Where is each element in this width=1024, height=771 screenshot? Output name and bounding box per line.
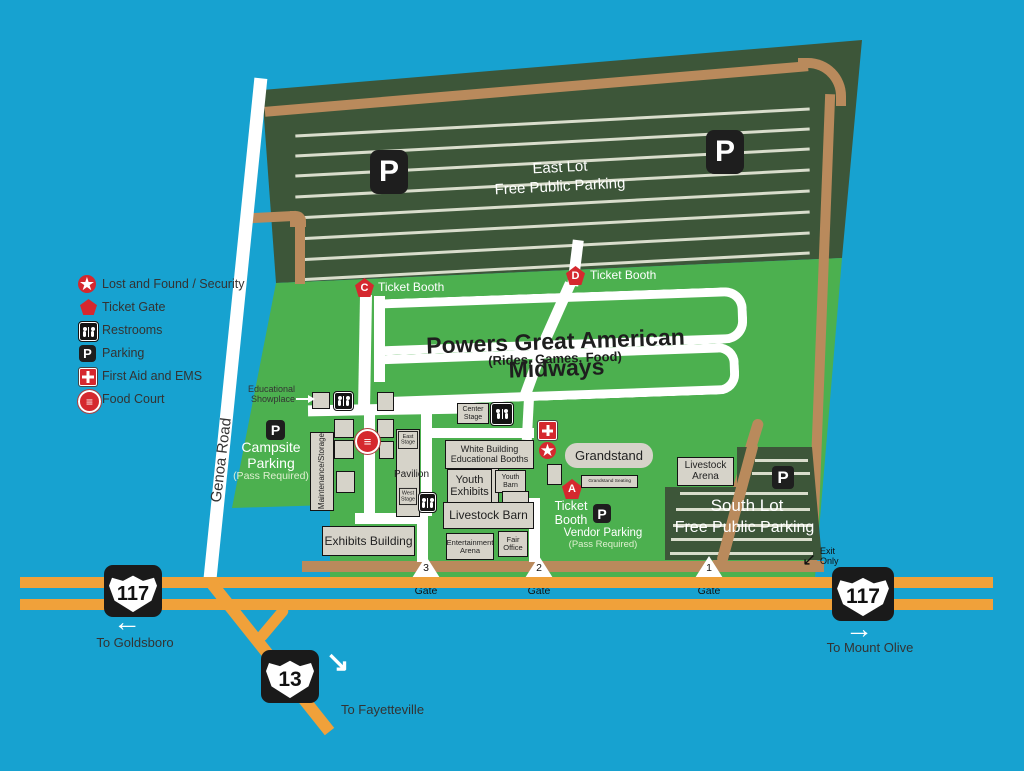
livestock-barn-building: Livestock Barn <box>443 502 534 529</box>
exit-only-arrow-icon: ↙ <box>802 551 816 570</box>
ticket-gate-icon <box>80 299 97 315</box>
food-court-icon: ≡ <box>355 429 380 454</box>
vendor-booth <box>377 419 394 438</box>
entertainment-arena-building: Entertainment Arena <box>446 533 494 560</box>
vendor-booth <box>377 392 394 411</box>
ticket-booth-c-label: Ticket Booth <box>378 281 458 294</box>
vendor-booth <box>334 440 354 459</box>
parking-icon: P <box>370 150 408 194</box>
educational-showplace-arrowhead <box>308 395 315 403</box>
ticket-booth-a-label: Ticket Booth <box>548 499 594 527</box>
vendor-booth <box>334 419 354 438</box>
youth-exhibits-building: Youth Exhibits <box>447 469 492 504</box>
campsite-parking-note: (Pass Required) <box>226 471 316 483</box>
center-stage-building: Center Stage <box>457 403 489 424</box>
first-aid-icon <box>79 368 97 386</box>
gate-1-label: 1 Gate <box>685 551 733 597</box>
parking-icon: P <box>266 420 285 440</box>
to-mount-olive-label: To Mount Olive <box>815 641 925 655</box>
legend-item-label: Food Court <box>102 393 282 407</box>
legend-item-label: First Aid and EMS <box>102 370 282 384</box>
vendor-parking-label: Vendor Parking <box>562 527 644 540</box>
parking-icon: P <box>593 504 611 523</box>
west-stage: West Stage <box>399 488 417 505</box>
grandstand-annex <box>547 464 562 485</box>
restrooms-icon <box>419 493 436 512</box>
south-lot-name: South Lot <box>687 496 807 515</box>
lost-and-found-icon: ★ <box>539 442 556 459</box>
us-13-shield: 13 <box>261 650 319 703</box>
lost-and-found-star-icon: ★ <box>78 275 96 293</box>
restrooms-icon <box>79 322 98 341</box>
grandstand-seating: Grandstand Seating <box>581 475 638 488</box>
legend-item-label: Restrooms <box>102 324 282 338</box>
legend-item-label: Parking <box>102 347 282 361</box>
parking-icon: P <box>79 345 96 362</box>
first-aid-icon <box>538 421 557 440</box>
exit-only-label: Exit Only <box>820 547 860 567</box>
pavilion-label: Pavilion <box>394 469 440 480</box>
food-court-icon: ≡ <box>78 390 101 413</box>
west-direction-arrow-icon: ← <box>113 608 141 636</box>
south-lot-subtitle: Free Public Parking <box>672 519 817 537</box>
restrooms-icon <box>491 403 513 425</box>
parking-icon: P <box>772 466 794 489</box>
grandstand-building: Grandstand <box>565 443 653 468</box>
east-stage: East Stage <box>398 431 418 449</box>
youth-barn-building: Youth Barn <box>495 470 526 493</box>
fairgrounds-map: Genoa Road South Lot Free Public Parking… <box>0 0 1024 771</box>
west-entry-road-v <box>295 222 305 284</box>
restrooms-icon <box>334 392 353 410</box>
vendor-booth <box>336 471 355 493</box>
east-direction-arrow-icon: → <box>845 615 873 643</box>
fayetteville-arrow-icon: ↘ <box>326 648 349 676</box>
to-fayetteville-label: To Fayetteville <box>330 703 435 717</box>
south-service-road <box>302 561 824 572</box>
vendor-parking-note: (Pass Required) <box>562 540 644 551</box>
to-goldsboro-label: To Goldsboro <box>85 636 185 650</box>
livestock-arena-building: Livestock Arena <box>677 457 734 486</box>
legend-item-label: Lost and Found / Security <box>102 278 282 292</box>
parking-icon: P <box>706 130 744 174</box>
legend-item-label: Ticket Gate <box>102 301 282 315</box>
campsite-parking-label: Campsite Parking <box>231 440 311 471</box>
white-building: White Building Educational Booths <box>445 440 534 469</box>
gate-2-label: 2 Gate <box>515 551 563 597</box>
gate-3-label: 3 Gate <box>402 551 450 597</box>
ticket-booth-d-label: Ticket Booth <box>590 269 670 282</box>
vendor-booth <box>379 441 394 459</box>
